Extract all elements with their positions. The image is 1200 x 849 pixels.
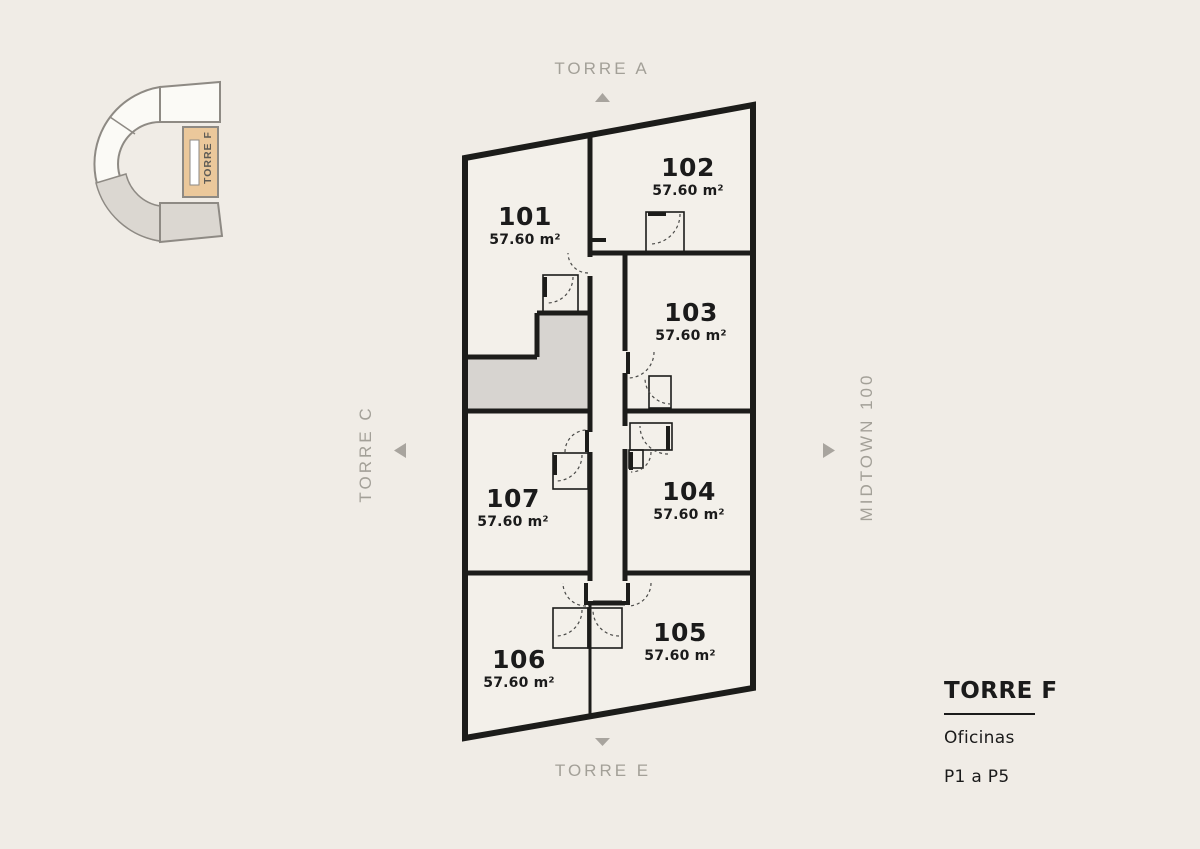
unit-105-area: 57.60 m²: [644, 648, 715, 664]
locator-bottom-wing: [160, 203, 222, 242]
unit-104-number: 104: [653, 479, 724, 504]
unit-107-label[interactable]: 107 57.60 m²: [477, 486, 548, 530]
unit-101-number: 101: [489, 204, 560, 229]
arrow-left-icon[interactable]: [394, 443, 406, 458]
unit-104-label[interactable]: 104 57.60 m²: [653, 479, 724, 523]
locator-label: TORRE F: [202, 131, 214, 184]
unit-102-area: 57.60 m²: [652, 183, 723, 199]
page-canvas: TORRE F: [0, 0, 1200, 849]
direction-torre-e[interactable]: TORRE E: [555, 761, 651, 781]
legend: TORRE F Oficinas P1 a P5: [944, 678, 1058, 787]
unit-106-area: 57.60 m²: [483, 675, 554, 691]
legend-underline: [944, 713, 1035, 715]
unit-102-number: 102: [652, 155, 723, 180]
unit-101-area: 57.60 m²: [489, 232, 560, 248]
direction-torre-c[interactable]: TORRE C: [356, 405, 376, 502]
unit-103-area: 57.60 m²: [655, 328, 726, 344]
unit-103-label[interactable]: 103 57.60 m²: [655, 300, 726, 344]
unit-107-area: 57.60 m²: [477, 514, 548, 530]
arrow-right-icon[interactable]: [823, 443, 835, 458]
legend-floors: P1 a P5: [944, 767, 1058, 787]
unit-101-label[interactable]: 101 57.60 m²: [489, 204, 560, 248]
unit-107-number: 107: [477, 486, 548, 511]
unit-103-number: 103: [655, 300, 726, 325]
legend-subtitle: Oficinas: [944, 728, 1058, 748]
unit-102-label[interactable]: 102 57.60 m²: [652, 155, 723, 199]
unit-106-label[interactable]: 106 57.60 m²: [483, 647, 554, 691]
locator-map: TORRE F: [94, 82, 222, 242]
unit-106-number: 106: [483, 647, 554, 672]
direction-torre-a[interactable]: TORRE A: [554, 59, 649, 79]
legend-title: TORRE F: [944, 678, 1058, 704]
unit-105-label[interactable]: 105 57.60 m²: [644, 620, 715, 664]
direction-midtown-100[interactable]: MIDTOWN 100: [857, 373, 877, 522]
unit-105-number: 105: [644, 620, 715, 645]
locator-core-bar: [190, 140, 199, 185]
arrow-up-icon[interactable]: [595, 93, 610, 102]
locator-top-wing: [160, 82, 220, 122]
arrow-down-icon[interactable]: [595, 738, 610, 746]
locator-shaded-arc: [96, 174, 160, 241]
unit-104-area: 57.60 m²: [653, 507, 724, 523]
